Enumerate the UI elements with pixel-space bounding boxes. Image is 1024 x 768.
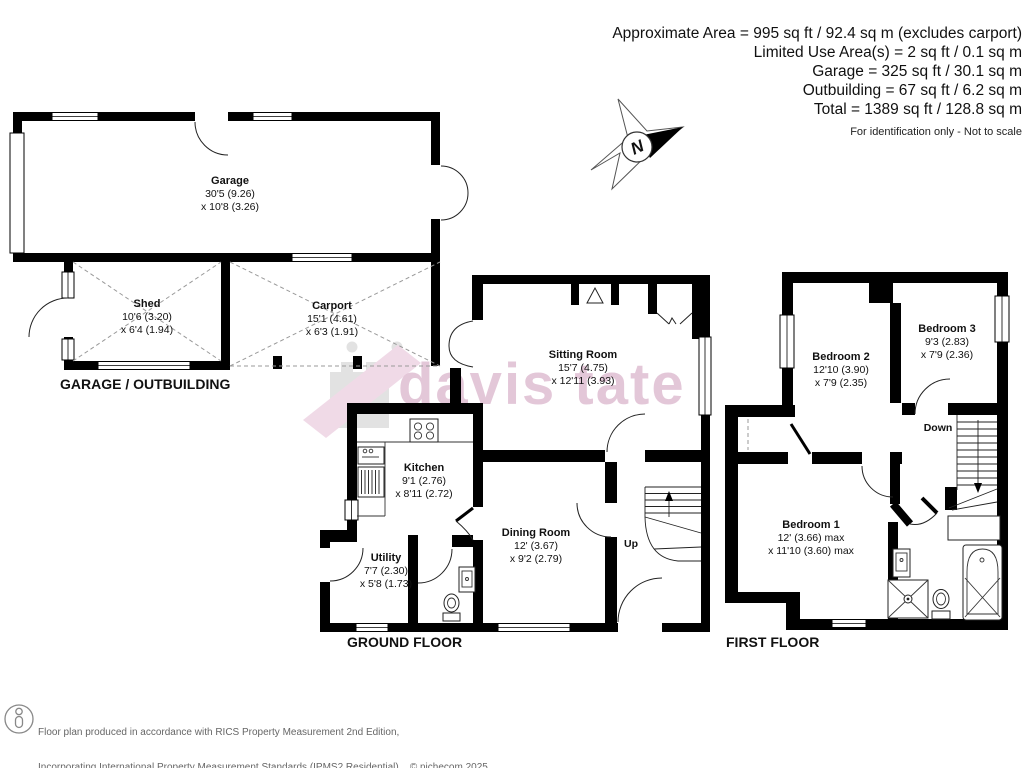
- staircase-up: [645, 487, 701, 561]
- front-door: [680, 313, 692, 324]
- front-door-mark: [669, 318, 676, 324]
- svg-text:x 12'11 (3.93): x 12'11 (3.93): [551, 375, 614, 387]
- sitting-room-door-swing: [607, 414, 645, 452]
- dining-room-label: Dining Room 12' (3.67) x 9'2 (2.79): [502, 527, 571, 565]
- dining-door-swing: [577, 503, 611, 537]
- ground-floor-plan: Sitting Room 15'7 (4.75) x 12'11 (3.93) …: [320, 275, 711, 650]
- garage-door: [10, 133, 24, 253]
- disclaimer: Floor plan produced in accordance with R…: [38, 704, 491, 768]
- kitchen-door-leaf: [456, 508, 473, 521]
- chimney-breast: [869, 283, 893, 303]
- svg-text:x 6'3 (1.91): x 6'3 (1.91): [306, 326, 358, 338]
- outbuilding-walls: [13, 112, 440, 370]
- svg-text:30'5 (9.26): 30'5 (9.26): [205, 188, 255, 200]
- hob: [410, 419, 438, 442]
- garage-side-door-swing: [441, 193, 468, 220]
- carport-post: [353, 356, 362, 369]
- outbuilding-doors: [29, 122, 468, 337]
- person-icon: [5, 705, 33, 733]
- cupboard: [948, 516, 1000, 540]
- svg-text:x 9'2 (2.79): x 9'2 (2.79): [510, 553, 562, 565]
- bedroom1-door-swing: [862, 466, 893, 497]
- svg-text:Utility: Utility: [371, 552, 402, 564]
- carport-post: [273, 356, 282, 369]
- garage-room-label: Garage 30'5 (9.26) x 10'8 (3.26): [201, 175, 259, 213]
- down-label: Down: [924, 422, 953, 434]
- svg-text:Carport: Carport: [312, 300, 352, 312]
- svg-text:Bedroom 2: Bedroom 2: [812, 351, 869, 363]
- svg-text:7'7 (2.30): 7'7 (2.30): [364, 565, 408, 577]
- svg-text:Shed: Shed: [134, 298, 161, 310]
- kitchen-label: Kitchen 9'1 (2.76) x 8'11 (2.72): [395, 462, 452, 500]
- chimney-breast: [571, 284, 579, 305]
- svg-text:x 11'10 (3.60) max: x 11'10 (3.60) max: [768, 545, 855, 557]
- sitting-room-label: Sitting Room 15'7 (4.75) x 12'11 (3.93): [549, 349, 618, 387]
- staircase-down: [948, 415, 1000, 540]
- front-door: [657, 313, 669, 324]
- french-door-swing: [449, 321, 473, 346]
- carport-room-label: Carport 15'1 (4.61) x 6'3 (1.91): [306, 300, 358, 338]
- toilet: [933, 590, 949, 609]
- svg-text:x 8'11 (2.72): x 8'11 (2.72): [395, 488, 452, 500]
- wc-door-swing: [418, 549, 452, 583]
- up-arrow: [665, 491, 673, 501]
- svg-text:12' (3.66) max: 12' (3.66) max: [778, 532, 846, 544]
- first-floor-doors: [748, 379, 950, 525]
- bedroom2-door-leaf: [791, 424, 810, 454]
- svg-text:Dining Room: Dining Room: [502, 527, 571, 539]
- angled-wall: [893, 504, 910, 524]
- floorplan-page: Approximate Area = 995 sq ft / 92.4 sq m…: [0, 0, 1024, 768]
- utility-door-swing: [330, 548, 363, 581]
- disclaimer-line: Incorporating International Property Mea…: [38, 762, 491, 768]
- svg-text:Sitting Room: Sitting Room: [549, 349, 618, 361]
- svg-text:Bedroom 1: Bedroom 1: [782, 519, 839, 531]
- garage-rear-door-swing: [195, 122, 228, 155]
- svg-text:Kitchen: Kitchen: [404, 462, 445, 474]
- svg-text:Bedroom 3: Bedroom 3: [918, 323, 975, 335]
- svg-text:15'7 (4.75): 15'7 (4.75): [558, 362, 608, 374]
- bathroom-door-leaf: [922, 498, 937, 513]
- bedroom2-label: Bedroom 2 12'10 (3.90) x 7'9 (2.35): [812, 351, 869, 389]
- svg-text:12'10 (3.90): 12'10 (3.90): [813, 364, 869, 376]
- floorplan-drawing: davis tate: [0, 0, 1024, 768]
- wc-fittings: [443, 567, 475, 621]
- rear-door-swing: [618, 578, 662, 622]
- first-floor-plan: Bedroom 2 12'10 (3.90) x 7'9 (2.35) Bedr…: [725, 272, 1009, 650]
- svg-text:x 7'9 (2.35): x 7'9 (2.35): [815, 377, 867, 389]
- svg-text:10'6 (3.20): 10'6 (3.20): [122, 311, 172, 323]
- bedroom3-label: Bedroom 3 9'3 (2.83) x 7'9 (2.36): [918, 323, 975, 361]
- ground-floor-section-label: GROUND FLOOR: [347, 634, 462, 650]
- svg-text:x 7'9 (2.36): x 7'9 (2.36): [921, 349, 973, 361]
- toilet: [444, 594, 459, 612]
- shed-door-swing: [29, 298, 68, 337]
- svg-text:9'3 (2.83): 9'3 (2.83): [925, 336, 969, 348]
- first-floor-section-label: FIRST FLOOR: [726, 634, 819, 650]
- up-label: Up: [624, 538, 638, 550]
- shed-room-label: Shed 10'6 (3.20) x 6'4 (1.94): [121, 298, 173, 336]
- fireplace: [579, 284, 611, 305]
- svg-text:12' (3.67): 12' (3.67): [514, 540, 558, 552]
- down-arrow: [974, 483, 982, 493]
- bedroom1-label: Bedroom 1 12' (3.66) max x 11'10 (3.60) …: [768, 519, 855, 557]
- svg-text:x 6'4 (1.94): x 6'4 (1.94): [121, 324, 173, 336]
- watermark: davis tate: [303, 342, 686, 439]
- garage-side-door-swing: [441, 166, 468, 193]
- svg-text:x 10'8 (3.26): x 10'8 (3.26): [201, 201, 259, 213]
- bathroom-fittings: [888, 545, 1002, 620]
- outbuilding-section-label: GARAGE / OUTBUILDING: [60, 376, 230, 392]
- svg-text:x 5'8 (1.73): x 5'8 (1.73): [360, 578, 412, 590]
- utility-label: Utility 7'7 (2.30) x 5'8 (1.73): [360, 552, 412, 590]
- chimney-breast: [611, 284, 619, 305]
- svg-text:15'1 (4.61): 15'1 (4.61): [307, 313, 357, 325]
- bathroom-door-swing: [910, 513, 937, 525]
- outbuilding-openings: [63, 111, 441, 337]
- svg-text:Garage: Garage: [211, 175, 249, 187]
- disclaimer-line: Floor plan produced in accordance with R…: [38, 727, 491, 739]
- bedroom3-door-swing: [915, 379, 950, 414]
- svg-text:9'1 (2.76): 9'1 (2.76): [402, 475, 446, 487]
- compass-icon: N: [591, 99, 683, 189]
